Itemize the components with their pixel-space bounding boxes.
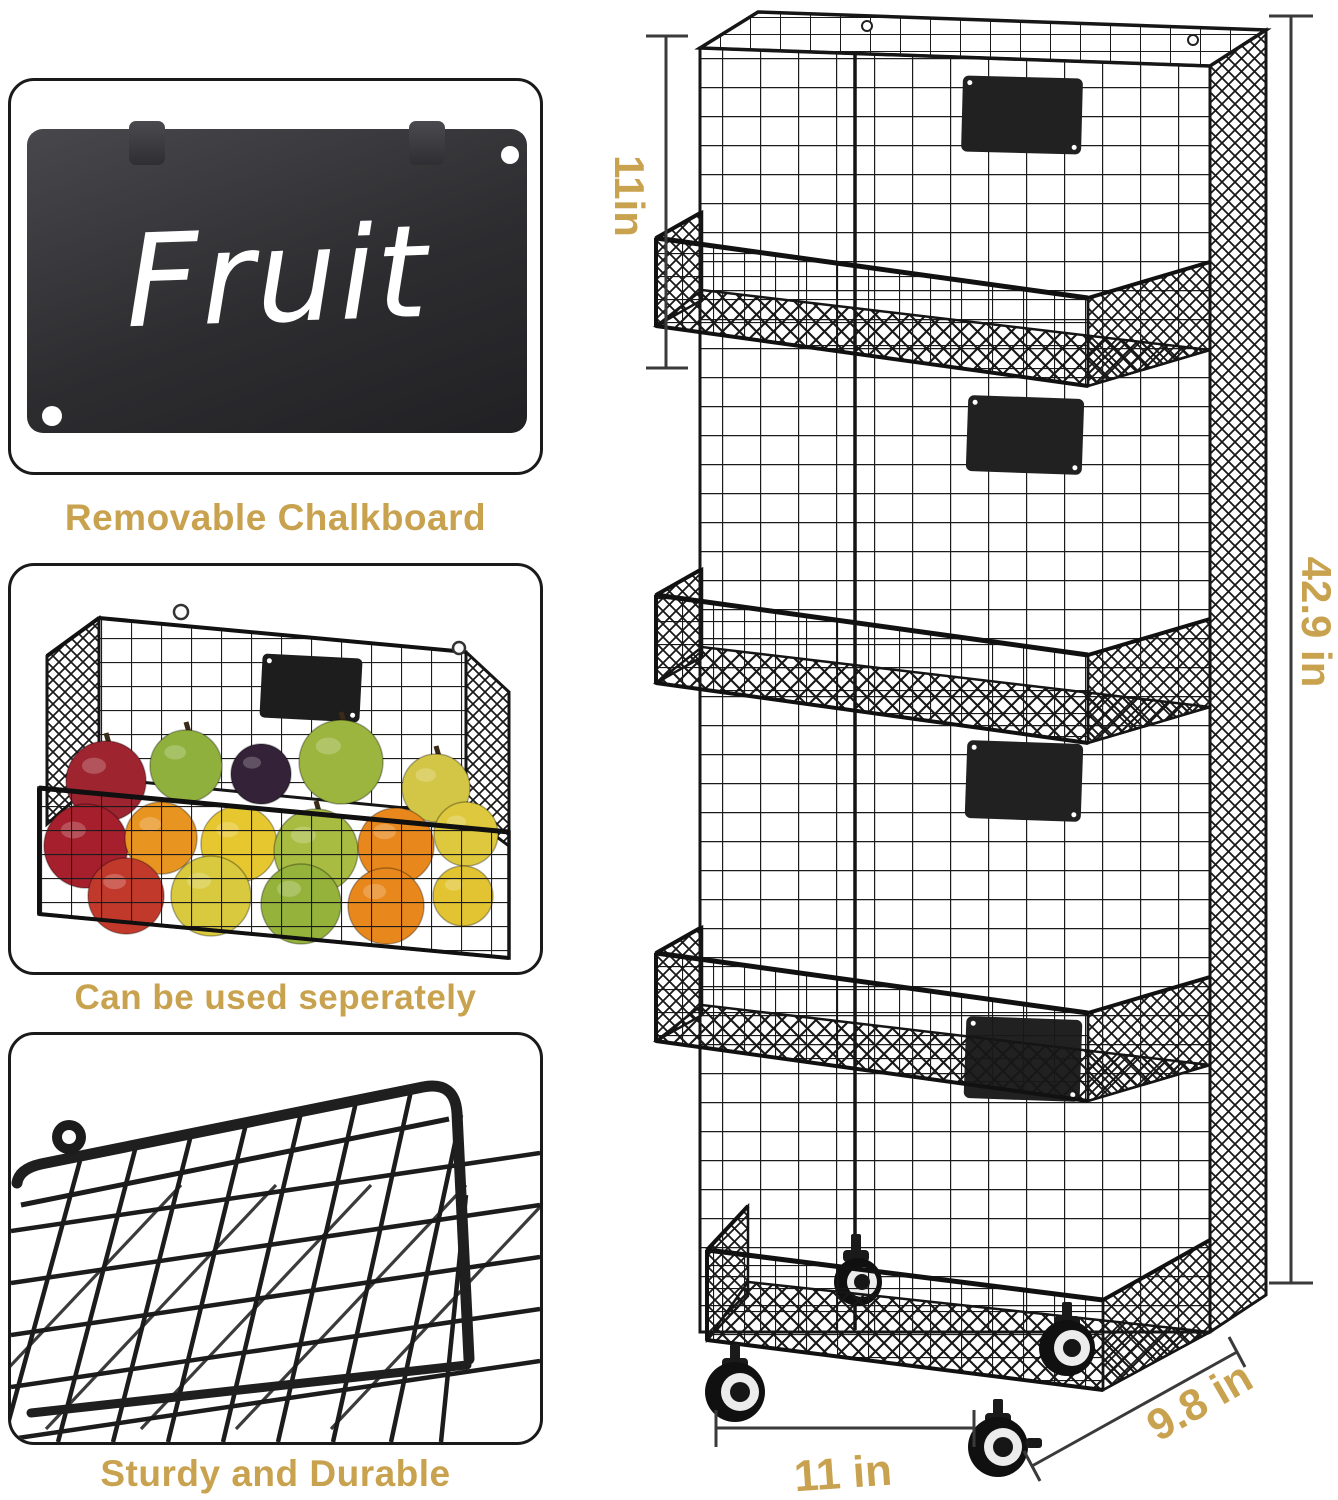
fruit-green-apple	[150, 730, 222, 802]
fruit-highlight	[82, 758, 106, 774]
fruit-green-apple	[299, 720, 383, 804]
rack-side-panel	[1210, 30, 1266, 1332]
chalkboard-photo-panel: Fruit	[8, 78, 543, 475]
chalkboard-clip	[409, 121, 445, 165]
caption-removable-chalkboard: Removable Chalkboard	[8, 496, 543, 540]
fruit-highlight	[164, 745, 186, 759]
fruit-highlight	[243, 757, 261, 769]
dimension-label-base-width: 11 in	[772, 1446, 915, 1500]
chalkboard: Fruit	[27, 129, 527, 433]
dimension-label-tier-height: 11in	[607, 136, 651, 256]
wire-closeup-illustration	[11, 1035, 540, 1442]
dimension-label-total-height: 42.9 in	[1293, 542, 1338, 702]
mount-tab	[52, 1120, 86, 1154]
caption-sturdy-durable: Sturdy and Durable	[8, 1452, 543, 1496]
caption-separate-use: Can be used seperately	[8, 976, 543, 1020]
tier-label-plate	[965, 740, 1084, 822]
caster-wheel-left	[705, 1344, 765, 1422]
fruit-plum	[231, 744, 291, 804]
chalkboard-clip	[129, 121, 165, 165]
screw-hole	[501, 146, 519, 164]
product-infographic: 11in 42.9 in 11 in 9.8 in Fruit Removabl…	[0, 0, 1338, 1500]
tier-label-plate	[259, 653, 362, 722]
fruit-highlight	[416, 768, 436, 782]
fruit-basket-photo-panel	[8, 563, 543, 975]
tier-label-plate	[966, 395, 1085, 475]
screw-hole	[42, 406, 62, 426]
chalkboard-text: Fruit	[25, 204, 529, 351]
durable-closeup-photo-panel	[8, 1032, 543, 1445]
fruit-highlight	[316, 738, 341, 755]
tier-label-plate	[961, 75, 1083, 154]
fruit-basket-illustration	[11, 566, 540, 972]
